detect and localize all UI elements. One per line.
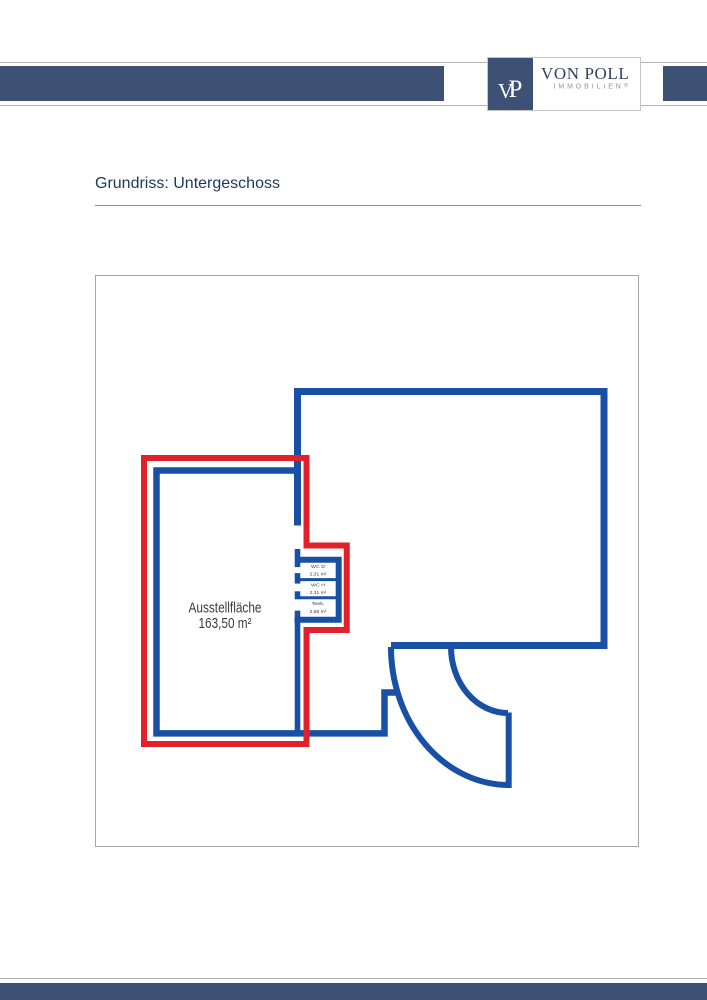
svg-text:163,50 m²: 163,50 m² [199,616,252,632]
svg-text:Teek.: Teek. [312,601,325,607]
svg-text:WC H: WC H [311,583,326,589]
svg-text:2,31 m²: 2,31 m² [310,590,327,596]
svg-text:2,31 m²: 2,31 m² [310,572,327,578]
svg-text:2,68 m²: 2,68 m² [310,609,327,615]
svg-text:Ausstellfläche: Ausstellfläche [189,601,262,617]
svg-text:WC D: WC D [311,564,326,570]
